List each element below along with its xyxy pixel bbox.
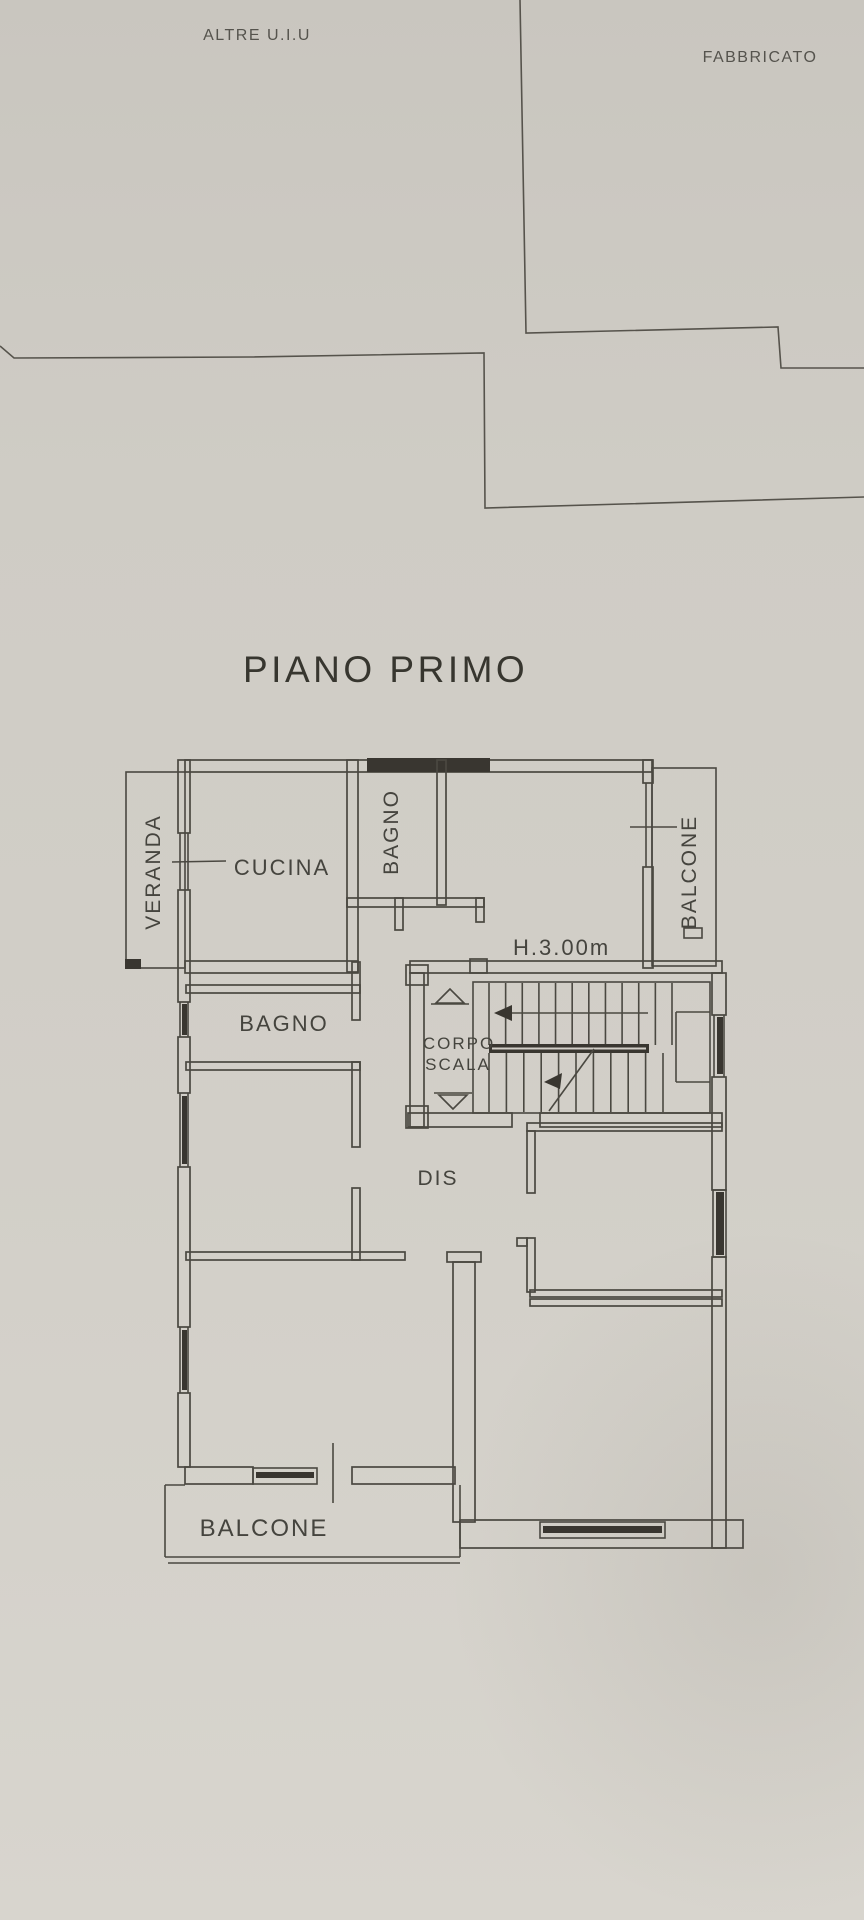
wall-stub-1 bbox=[395, 898, 403, 930]
bagno-top-label: BAGNO bbox=[380, 789, 403, 875]
window-sash bbox=[182, 1330, 187, 1390]
wall-bottom bbox=[460, 1520, 743, 1548]
parcel-boundary-left bbox=[0, 346, 864, 508]
floor-title: PIANO PRIMO bbox=[243, 649, 528, 690]
scanned-floor-plan: ALTRE U.I.U FABBRICATO PIANO PRIMO bbox=[0, 0, 864, 1920]
stair-arrow-down-flight bbox=[544, 1073, 562, 1089]
stair-rail-core bbox=[492, 1048, 646, 1050]
wall-upper-separation bbox=[410, 961, 722, 973]
wall-mid-left-bottom bbox=[186, 1252, 405, 1260]
window-sash bbox=[182, 1004, 187, 1035]
balcony-door-bottomleft bbox=[253, 1443, 333, 1503]
corpo-label: CORPO bbox=[423, 1034, 495, 1053]
fabbricato-label: FABBRICATO bbox=[703, 49, 818, 66]
wall-midright-left-b bbox=[527, 1238, 535, 1292]
balcone-right-label: BALCONE bbox=[678, 815, 701, 929]
wall-door-notch bbox=[517, 1238, 527, 1246]
height-annotation: H.3.00m bbox=[513, 935, 610, 960]
window-left-4 bbox=[180, 1327, 188, 1393]
window-midright bbox=[713, 1190, 726, 1257]
bagno-left-label: BAGNO bbox=[239, 1011, 328, 1036]
window-bottom bbox=[540, 1522, 665, 1538]
wall-cucina-bottom bbox=[185, 961, 358, 973]
window-left-3 bbox=[180, 1093, 188, 1167]
wall-t-stem bbox=[453, 1262, 475, 1522]
door-sash bbox=[256, 1472, 314, 1478]
wall-right-2 bbox=[712, 1077, 726, 1190]
wall-left-4 bbox=[178, 1167, 190, 1327]
wall-mid-left-L bbox=[352, 1062, 360, 1147]
wall-t-cap bbox=[447, 1252, 481, 1262]
stair-treads-upper bbox=[489, 983, 672, 1045]
wall-cucina-right bbox=[347, 760, 358, 972]
wall-bagno-left-top bbox=[186, 985, 360, 993]
wall-left-1 bbox=[178, 760, 190, 833]
window-top-dark bbox=[367, 758, 490, 772]
stair-treads-lower bbox=[489, 1053, 663, 1112]
window-left-2 bbox=[180, 1002, 188, 1037]
wall-bagno-left-bottom bbox=[186, 1062, 360, 1070]
wall-midright-left-a bbox=[527, 1131, 535, 1193]
window-sash bbox=[543, 1526, 662, 1533]
wall-midright-bottom-b bbox=[530, 1299, 722, 1306]
wall-stair-bottom-b bbox=[540, 1113, 722, 1127]
wall-mid-left-right bbox=[352, 1188, 360, 1260]
window-right-top bbox=[630, 783, 677, 867]
window-sash bbox=[717, 1017, 723, 1074]
site-boundaries: ALTRE U.I.U FABBRICATO bbox=[0, 0, 864, 508]
wall-stub-2 bbox=[476, 898, 484, 922]
stair-arrow-up-flight bbox=[494, 1005, 512, 1021]
wall-bottomleft-b bbox=[352, 1467, 455, 1484]
window-veranda bbox=[172, 833, 226, 890]
wall-bottomleft-a bbox=[185, 1467, 253, 1484]
triangle-down bbox=[439, 1095, 467, 1109]
window-sash bbox=[182, 1096, 187, 1164]
veranda-corner-dark bbox=[125, 959, 141, 969]
wall-left-5 bbox=[178, 1393, 190, 1467]
room-labels: VERANDA CUCINA BAGNO BALCONE H.3.00m BAG… bbox=[142, 789, 701, 1542]
cucina-label: CUCINA bbox=[234, 855, 330, 880]
floor-plan: VERANDA CUCINA BAGNO BALCONE H.3.00m BAG… bbox=[125, 758, 743, 1563]
vestibule-arrow-down bbox=[434, 1093, 472, 1109]
wall-right-3 bbox=[712, 1257, 726, 1548]
window-veranda-tick bbox=[172, 861, 226, 862]
window-sash bbox=[716, 1192, 724, 1255]
triangle-up bbox=[436, 989, 464, 1003]
vestibule-arrow-up bbox=[431, 989, 469, 1004]
wall-right-1 bbox=[712, 973, 726, 1015]
scala-label: SCALA bbox=[425, 1055, 491, 1074]
altre-uiu-label: ALTRE U.I.U bbox=[203, 27, 311, 44]
dis-label: DIS bbox=[417, 1167, 458, 1190]
wall-midright-bottom-a bbox=[530, 1290, 722, 1297]
wall-bagno-top-right bbox=[437, 760, 446, 905]
window-stairs bbox=[714, 1015, 724, 1077]
veranda-label: VERANDA bbox=[142, 814, 165, 930]
balcone-bottom-label: BALCONE bbox=[200, 1515, 329, 1542]
wall-bagno-top-bottom bbox=[347, 898, 484, 907]
wall-left-3 bbox=[178, 1037, 190, 1093]
